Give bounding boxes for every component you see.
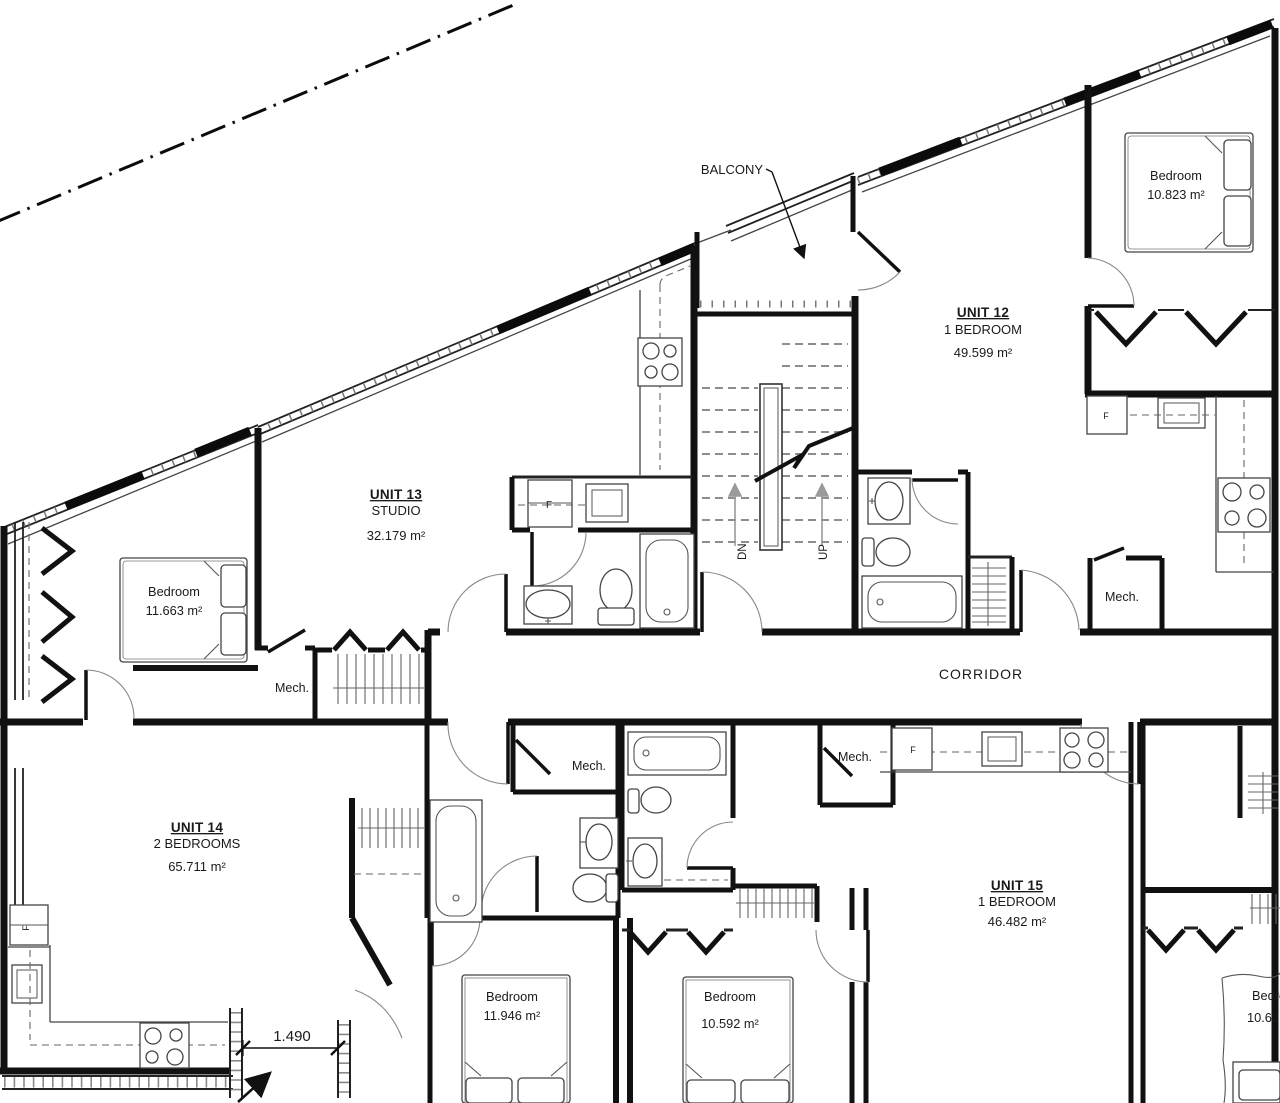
unit-12-area: 49.599 m² [954,345,1013,360]
bathtub-icon [430,800,482,922]
toilet-icon [600,569,632,611]
toilet-icon [573,874,607,902]
unit-13-area: 32.179 m² [367,528,426,543]
unit-15-type: 1 BEDROOM [978,894,1056,909]
bedroom-area: 10.592 m² [701,1016,759,1031]
dimension-text: 1.490 [273,1028,311,1045]
bedroom-name: Bedroom [704,989,756,1004]
fridge-label-u13: F [546,500,552,511]
unit-14-name: UNIT 14 [171,820,224,835]
unit-15-label: UNIT 15 1 BEDROOM 46.482 m² [978,878,1056,929]
bedroom-name: Bedroom [1252,988,1280,1003]
mech-label-1: Mech. [275,681,309,695]
fridge-label-u12: F [1103,411,1109,421]
unit-12-label: UNIT 12 1 BEDROOM 49.599 m² [944,305,1022,360]
floor-plan-page: DN UP [0,0,1280,1103]
bedroom-name: Bedroom [1150,168,1202,183]
bedroom-name: Bedroom [148,584,200,599]
property-line [0,4,516,222]
unit-12-type: 1 BEDROOM [944,322,1022,337]
sink-icon [586,824,612,860]
beds [120,133,1280,1103]
balcony-leader-arrow [772,172,804,258]
balcony-label: BALCONY [701,162,763,177]
mech-label-4: Mech. [1105,590,1139,604]
bedroom-area: 11.946 m² [484,1008,541,1023]
unit-14-area: 65.711 m² [168,859,226,874]
fridge-label-u14: F [21,925,31,931]
mech-label-2: Mech. [572,759,606,773]
toilet-icon [641,787,671,813]
unit-13-type: STUDIO [371,503,420,518]
sink-icon [633,844,657,878]
mech-label-3: Mech. [838,750,872,764]
bedroom-name: Bedroom [486,989,538,1004]
toilet-icon [876,538,910,566]
unit-15-name: UNIT 15 [991,878,1044,893]
stair-up-label: UP [818,544,830,560]
corridor-label: CORRIDOR [939,666,1023,682]
unit-14-label: UNIT 14 2 BEDROOMS 65.711 m² [154,820,241,874]
unit-12-name: UNIT 12 [957,305,1009,320]
unit-15-area: 46.482 m² [988,914,1047,929]
bedroom-area: 10.823 m² [1147,187,1205,202]
unit-13-name: UNIT 13 [370,487,423,502]
sink-icon [526,590,570,618]
stair-dn-label: DN [737,543,749,560]
stairwell: DN UP [702,344,858,560]
sink-icon [875,482,903,520]
unit-14-type: 2 BEDROOMS [154,836,241,851]
fridge-label-u15: F [910,745,916,755]
dimension-1490: 1.490 [236,1028,345,1056]
unit-13-label: UNIT 13 STUDIO 32.179 m² [367,487,426,543]
bedroom-area: 11.663 m² [146,603,203,618]
bedroom-area: 10.62 [1247,1010,1279,1025]
floor-plan-drawing: DN UP [0,0,1280,1103]
